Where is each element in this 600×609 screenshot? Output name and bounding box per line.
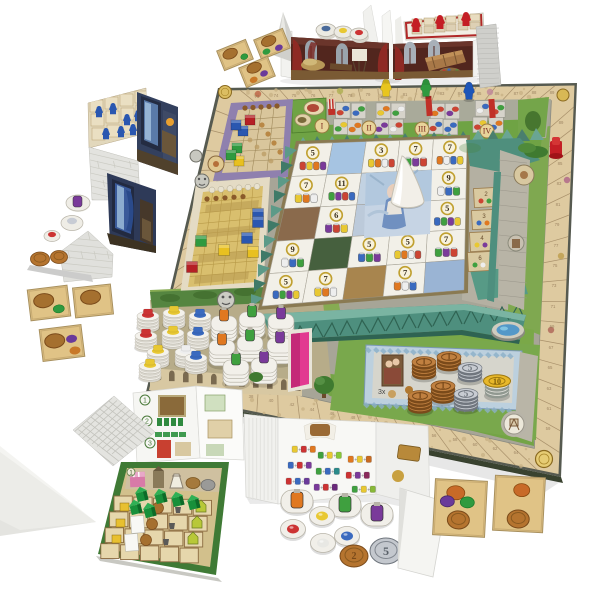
svg-text:69: 69 (550, 324, 555, 329)
svg-text:5: 5 (464, 389, 469, 399)
svg-text:1: 1 (447, 352, 452, 362)
svg-text:48: 48 (351, 415, 356, 420)
svg-text:2: 2 (352, 551, 357, 562)
svg-text:75: 75 (553, 263, 558, 268)
svg-text:5: 5 (284, 276, 288, 286)
svg-text:60: 60 (473, 442, 478, 447)
svg-text:46: 46 (330, 411, 335, 416)
svg-text:85: 85 (477, 91, 482, 96)
svg-text:89: 89 (550, 90, 555, 95)
svg-text:1: 1 (441, 381, 446, 391)
svg-text:81: 81 (403, 92, 408, 97)
svg-text:71: 71 (551, 304, 556, 309)
svg-text:7: 7 (448, 142, 453, 152)
svg-text:5: 5 (311, 148, 315, 158)
svg-text:77: 77 (329, 93, 334, 98)
svg-text:42: 42 (290, 402, 295, 407)
svg-text:I: I (321, 122, 324, 131)
svg-text:1: 1 (418, 391, 423, 401)
svg-text:61: 61 (547, 406, 552, 411)
svg-text:63: 63 (547, 386, 552, 391)
svg-text:7: 7 (413, 143, 418, 153)
svg-text:3: 3 (148, 441, 152, 448)
svg-text:65: 65 (548, 365, 553, 370)
svg-text:74: 74 (274, 93, 279, 98)
svg-text:44: 44 (310, 407, 315, 412)
svg-text:11: 11 (338, 178, 346, 188)
svg-text:83: 83 (440, 91, 445, 96)
svg-text:85: 85 (558, 161, 563, 166)
svg-text:83: 83 (557, 181, 562, 186)
svg-text:88: 88 (532, 90, 537, 95)
svg-text:3: 3 (379, 145, 383, 155)
svg-text:79: 79 (555, 222, 560, 227)
svg-text:77: 77 (554, 243, 559, 248)
svg-text:67: 67 (549, 345, 554, 350)
svg-text:86: 86 (495, 91, 500, 96)
svg-text:10: 10 (493, 377, 501, 386)
svg-text:56: 56 (432, 433, 437, 438)
svg-text:III: III (418, 125, 426, 134)
svg-text:6: 6 (334, 210, 338, 220)
svg-text:73: 73 (552, 283, 557, 288)
svg-text:9: 9 (290, 244, 294, 254)
svg-text:78: 78 (348, 93, 353, 98)
svg-text:89: 89 (559, 120, 564, 125)
svg-text:1: 1 (422, 357, 427, 367)
svg-text:7: 7 (304, 180, 309, 190)
svg-text:5: 5 (445, 203, 449, 213)
svg-text:1: 1 (143, 398, 147, 405)
svg-text:7: 7 (323, 273, 328, 283)
svg-text:64: 64 (514, 450, 519, 455)
svg-text:81: 81 (556, 202, 561, 207)
svg-text:7: 7 (403, 267, 408, 277)
svg-text:3x: 3x (378, 389, 386, 396)
svg-text:79: 79 (366, 92, 371, 97)
svg-text:62: 62 (493, 446, 498, 451)
svg-text:9: 9 (446, 173, 450, 183)
svg-text:5: 5 (383, 544, 389, 558)
svg-text:76: 76 (311, 93, 316, 98)
svg-text:84: 84 (458, 91, 463, 96)
svg-text:5: 5 (367, 239, 371, 249)
svg-text:87: 87 (514, 91, 519, 96)
svg-text:5: 5 (406, 236, 410, 246)
svg-text:59: 59 (546, 426, 551, 431)
svg-text:5: 5 (468, 363, 473, 373)
svg-text:73: 73 (255, 94, 260, 99)
svg-text:58: 58 (453, 437, 458, 442)
svg-text:IV: IV (483, 127, 492, 136)
svg-text:75: 75 (292, 93, 297, 98)
svg-text:40: 40 (269, 398, 274, 403)
svg-text:II: II (366, 124, 372, 133)
svg-text:7: 7 (444, 234, 449, 244)
